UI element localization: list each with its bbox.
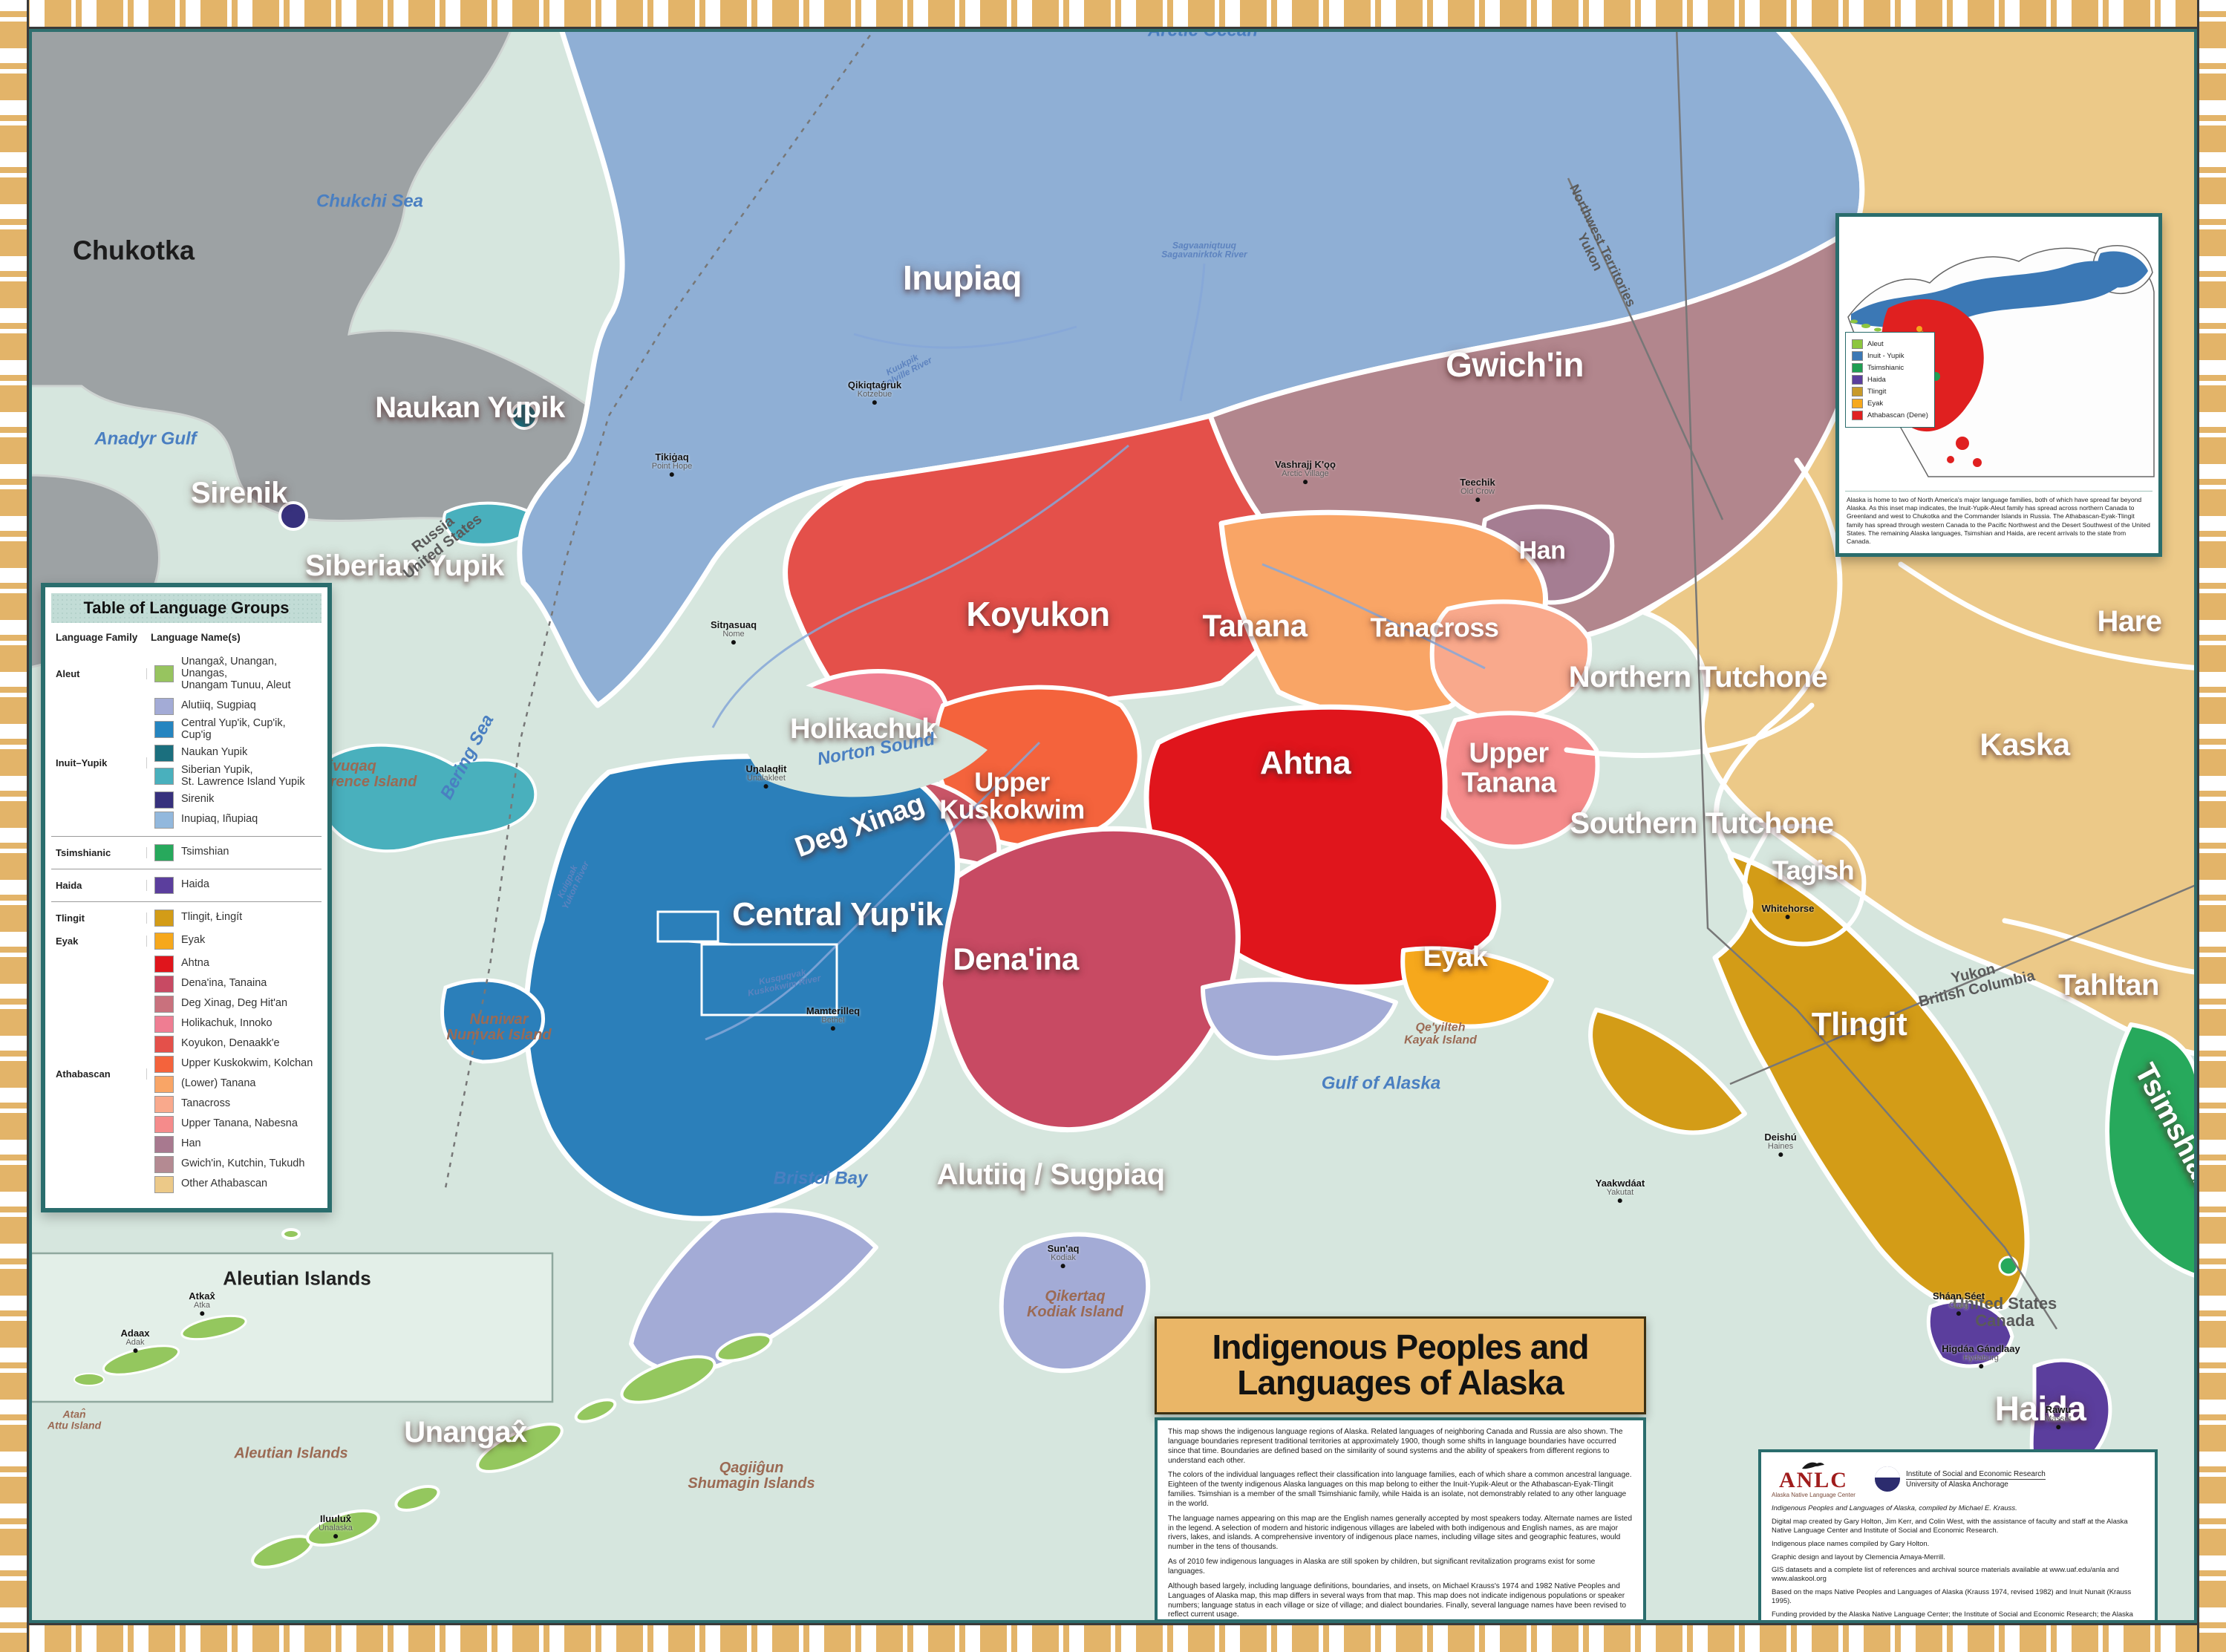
credits-line-2: Digital map created by Gary Holton, Jim … bbox=[1772, 1518, 2144, 1535]
legend-name: Upper Kuskokwim, Kolchan bbox=[181, 1058, 313, 1070]
legend-entries: Tlingit, Łingít bbox=[154, 907, 317, 930]
legend-entry-siberian-yupik-st-lawrence-island-yupik: Siberian Yupik, St. Lawrence Island Yupi… bbox=[154, 765, 317, 789]
inset-legend-row-aleut: Aleut bbox=[1852, 339, 1928, 349]
village-deish: DeishúHaines bbox=[1764, 1132, 1796, 1157]
village-indigenous-name: Mamterilleq bbox=[806, 1006, 860, 1016]
village-iluulux: Iluulux̂Unalaska bbox=[319, 1514, 353, 1538]
inset-legend-label: Athabascan (Dene) bbox=[1867, 411, 1928, 419]
poster-title-box: Indigenous Peoples and Languages of Alas… bbox=[1155, 1316, 1646, 1414]
legend-entry-unangax-unangan-unangas-unangam-tunuu-al: Unangax̂, Unangan, Unangas, Unangam Tunu… bbox=[154, 656, 317, 692]
legend-name: Koyukon, Denaakk'e bbox=[181, 1038, 280, 1050]
legend-name: Tanacross bbox=[181, 1098, 230, 1110]
legend-swatch bbox=[154, 1036, 174, 1053]
legend-swatch bbox=[154, 665, 174, 682]
legend-name: Other Athabascan bbox=[181, 1178, 267, 1190]
inset-eyak-dot bbox=[1916, 326, 1922, 332]
legend-entry-central-yup-ik-cup-ik-cup-ig: Central Yup'ik, Cup'ik, Cup'ig bbox=[154, 718, 317, 742]
legend-entry-sirenik: Sirenik bbox=[154, 791, 317, 809]
village-indigenous-name: Sun'aq bbox=[1048, 1244, 1080, 1254]
legend-entry-ahtna: Ahtna bbox=[154, 956, 317, 973]
legend-title: Table of Language Groups bbox=[51, 593, 322, 623]
legend-swatch bbox=[154, 698, 174, 715]
legend-entries: Haida bbox=[154, 874, 317, 897]
legend-entry-eyak: Eyak bbox=[154, 933, 317, 950]
legend-group-aleut: AleutUnangax̂, Unangan, Unangas, Unangam… bbox=[56, 653, 317, 695]
legend-body: AleutUnangax̂, Unangan, Unangas, Unangam… bbox=[45, 649, 327, 1201]
legend-entry-upper-tanana-nabesna: Upper Tanana, Nabesna bbox=[154, 1116, 317, 1133]
legend-name: Unangax̂, Unangan, Unangas, Unangam Tunu… bbox=[181, 656, 317, 692]
legend-family-tlingit: Tlingit bbox=[56, 912, 147, 924]
legend-swatch bbox=[154, 745, 174, 762]
village-indigenous-name: Yaakwdáat bbox=[1596, 1178, 1645, 1189]
legend-swatch bbox=[154, 1176, 174, 1193]
village-dot-icon bbox=[333, 1534, 338, 1538]
legend-swatch bbox=[154, 996, 174, 1013]
inset-legend-row-eyak: Eyak bbox=[1852, 399, 1928, 408]
legend-swatch bbox=[154, 812, 174, 829]
legend-name: Tsimshian bbox=[181, 846, 229, 858]
iser-line2: University of Alaska Anchorage bbox=[1906, 1480, 2008, 1489]
legend-section-0: AleutUnangax̂, Unangan, Unangas, Unangam… bbox=[51, 649, 322, 836]
village-indigenous-name: Whitehorse bbox=[1762, 904, 1815, 914]
village-indigenous-name: Atkax̂ bbox=[189, 1291, 215, 1302]
village-dot-icon bbox=[872, 400, 877, 405]
legend-entry-alutiiq-sugpiaq: Alutiiq, Sugpiaq bbox=[154, 698, 317, 715]
north-america-inset-box: AleutInuit - YupikTsimshianicHaidaTlingi… bbox=[1835, 213, 2162, 557]
description-paragraph-3: The language names appearing on this map… bbox=[1168, 1515, 1633, 1553]
village-indigenous-name: Teechik bbox=[1460, 477, 1495, 488]
frame-top bbox=[0, 0, 2226, 29]
village-teechik: TeechikOld Crow bbox=[1460, 477, 1495, 502]
village-dot-icon bbox=[2056, 1425, 2060, 1429]
village-indigenous-name: Sháan Séet bbox=[1933, 1291, 1985, 1302]
village-adaax: AdaaxAdak bbox=[120, 1328, 149, 1353]
legend-entry-dena-ina-tanaina: Dena'ina, Tanaina bbox=[154, 976, 317, 993]
legend-group-tlingit: TlingitTlingit, Łingít bbox=[56, 907, 317, 930]
legend-entry-upper-kuskokwim-kolchan: Upper Kuskokwim, Kolchan bbox=[154, 1056, 317, 1073]
legend-entry-gwich-in-kutchin-tukudh: Gwich'in, Kutchin, Tukudh bbox=[154, 1156, 317, 1173]
legend-swatch bbox=[154, 910, 174, 927]
inset-legend-swatch bbox=[1852, 375, 1863, 385]
village-english-name: Unalaska bbox=[319, 1524, 353, 1533]
inset-athabascan-sw3 bbox=[1947, 456, 1954, 463]
village-indigenous-name: Rawu bbox=[2045, 1405, 2071, 1415]
village-indigenous-name: Uŋalaqłit bbox=[746, 764, 787, 774]
legend-entry-inupiaq-i-upiaq: Inupiaq, Iñupiaq bbox=[154, 812, 317, 829]
legend-swatch bbox=[154, 768, 174, 785]
inset-athabascan-sw2 bbox=[1973, 458, 1982, 467]
inset-legend-row-tsimshianic: Tsimshianic bbox=[1852, 363, 1928, 373]
legend-swatch bbox=[154, 1076, 174, 1093]
village-rawu: RawuMasset bbox=[2045, 1405, 2071, 1429]
inset-legend-row-inuit-yupik: Inuit - Yupik bbox=[1852, 351, 1928, 361]
legend-name: Dena'ina, Tanaina bbox=[181, 978, 267, 990]
village-english-name: Bethel bbox=[806, 1016, 860, 1025]
legend-entry-tanacross: Tanacross bbox=[154, 1096, 317, 1113]
village-sh-an-s-et: Sháan SéetCraig bbox=[1933, 1291, 1985, 1316]
legend-entries: Tsimshian bbox=[154, 841, 317, 864]
village-english-name: Point Hope bbox=[652, 463, 692, 471]
village-english-name: Craig bbox=[1933, 1302, 1985, 1310]
credits-line-3: Indigenous place names compiled by Gary … bbox=[1772, 1540, 2144, 1549]
village-dot-icon bbox=[1956, 1311, 1961, 1316]
inset-legend-label: Haida bbox=[1867, 376, 1886, 384]
legend-entry-haida: Haida bbox=[154, 877, 317, 894]
village-dot-icon bbox=[1618, 1198, 1622, 1203]
village-dot-icon bbox=[133, 1348, 137, 1353]
description-paragraph-2: The colors of the individual languages r… bbox=[1168, 1471, 1633, 1509]
legend-name: (Lower) Tanana bbox=[181, 1078, 256, 1090]
inset-legend-swatch bbox=[1852, 399, 1863, 408]
legend-name: Sirenik bbox=[181, 794, 214, 806]
legend-name: Deg Xinag, Deg Hit'an bbox=[181, 998, 287, 1010]
village-higd-a-g-ndlaay: Higdáa GándlaayHydaburg bbox=[1942, 1344, 2020, 1368]
inset-legend-label: Eyak bbox=[1867, 399, 1883, 408]
iser-logo: Institute of Social and Economic Researc… bbox=[1875, 1466, 2046, 1492]
legend-name: Central Yup'ik, Cup'ik, Cup'ig bbox=[181, 718, 317, 742]
legend-entries: Eyak bbox=[154, 930, 317, 953]
village-english-name: Masset bbox=[2045, 1415, 2071, 1424]
village-dot-icon bbox=[200, 1311, 204, 1316]
inset-legend-label: Tlingit bbox=[1867, 388, 1886, 396]
village-dot-icon bbox=[670, 472, 674, 477]
village-english-name: Nome bbox=[711, 630, 757, 639]
legend-family-aleut: Aleut bbox=[56, 668, 147, 679]
legend-swatch bbox=[154, 721, 174, 738]
frame-bottom bbox=[0, 1623, 2226, 1652]
frame-right bbox=[2197, 0, 2226, 1652]
credits-line-6: Based on the maps Native Peoples and Lan… bbox=[1772, 1588, 2144, 1606]
village-english-name: Yakutat bbox=[1596, 1189, 1645, 1198]
village-dot-icon bbox=[1979, 1364, 1983, 1368]
village-english-name: Kodiak bbox=[1048, 1254, 1080, 1263]
inset-legend-swatch bbox=[1852, 411, 1863, 420]
village-dot-icon bbox=[731, 640, 736, 644]
inset-legend-row-tlingit: Tlingit bbox=[1852, 387, 1928, 396]
legend-name: Ahtna bbox=[181, 958, 209, 970]
village-indigenous-name: Vashrajj K'ǫǫ bbox=[1275, 460, 1336, 470]
inset-caption: Alaska is home to two of North America's… bbox=[1845, 491, 2152, 549]
village-english-name: Unalakleet bbox=[746, 774, 787, 783]
legend-name: Gwich'in, Kutchin, Tukudh bbox=[181, 1158, 304, 1170]
village-vashrajj-k: Vashrajj K'ǫǫArctic Village bbox=[1275, 460, 1336, 484]
legend-name: Eyak bbox=[181, 935, 205, 947]
village-english-name: Haines bbox=[1764, 1143, 1796, 1152]
legend-col-names: Language Name(s) bbox=[151, 632, 241, 643]
inset-legend-label: Inuit - Yupik bbox=[1867, 352, 1904, 360]
legend-family-tsimshianic: Tsimshianic bbox=[56, 847, 147, 858]
frame-left bbox=[0, 0, 29, 1652]
village-sun-aq: Sun'aqKodiak bbox=[1048, 1244, 1080, 1268]
poster-indigenous-languages-of-alaska: InupiaqGwich'inNaukan YupikSirenikSiberi… bbox=[0, 0, 2226, 1652]
village-dot-icon bbox=[764, 784, 768, 789]
legend-table-of-language-groups: Table of Language Groups Language Family… bbox=[41, 583, 332, 1212]
legend-swatch bbox=[154, 1136, 174, 1153]
village-sit-asuaq: SitŋasuaqNome bbox=[711, 620, 757, 644]
village-indigenous-name: Tikiġaq bbox=[652, 452, 692, 463]
legend-swatch bbox=[154, 1096, 174, 1113]
legend-family-athabascan: Athabascan bbox=[56, 1068, 147, 1080]
description-paragraph-1: This map shows the indigenous language r… bbox=[1168, 1428, 1633, 1466]
legend-group-athabascan: AthabascanAhtnaDena'ina, TanainaDeg Xina… bbox=[56, 953, 317, 1196]
description-paragraph-4: As of 2010 few indigenous languages in A… bbox=[1168, 1558, 1633, 1577]
credits-logos: ANLC Alaska Native Language Center Insti… bbox=[1772, 1460, 2144, 1498]
inset-athabascan-sw1 bbox=[1956, 437, 1969, 450]
inset-legend-label: Tsimshianic bbox=[1867, 364, 1904, 372]
anlc-logo: ANLC Alaska Native Language Center bbox=[1772, 1460, 1855, 1498]
legend-section-1: TsimshianicTsimshian bbox=[51, 836, 322, 869]
legend-swatch bbox=[154, 877, 174, 894]
legend-swatch bbox=[154, 1156, 174, 1173]
legend-entry-koyukon-denaakk-e: Koyukon, Denaakk'e bbox=[154, 1036, 317, 1053]
village-english-name: Arctic Village bbox=[1275, 470, 1336, 479]
village-mamterilleq: MamterilleqBethel bbox=[806, 1006, 860, 1031]
legend-name: Inupiaq, Iñupiaq bbox=[181, 814, 258, 826]
village-indigenous-name: Sitŋasuaq bbox=[711, 620, 757, 630]
village-yaakwd-at: YaakwdáatYakutat bbox=[1596, 1178, 1645, 1203]
legend-section-3: TlingitTlingit, ŁingítEyakEyakAthabascan… bbox=[51, 901, 322, 1201]
inset-legend-row-haida: Haida bbox=[1852, 375, 1928, 385]
village-english-name: Atka bbox=[189, 1302, 215, 1310]
legend-swatch bbox=[154, 791, 174, 809]
legend-swatch bbox=[154, 933, 174, 950]
legend-swatch bbox=[154, 1056, 174, 1073]
legend-name: Upper Tanana, Nabesna bbox=[181, 1118, 298, 1130]
village-dot-icon bbox=[1303, 480, 1308, 484]
village-dot-icon bbox=[1475, 497, 1480, 502]
legend-swatch bbox=[154, 976, 174, 993]
credits-lines: Indigenous Peoples and Languages of Alas… bbox=[1772, 1504, 2144, 1637]
legend-group-inuit-yupik: Inuit–YupikAlutiiq, SugpiaqCentral Yup'i… bbox=[56, 695, 317, 832]
anlc-wordmark: ANLC bbox=[1779, 1470, 1848, 1490]
legend-swatch bbox=[154, 844, 174, 861]
legend-name: Tlingit, Łingít bbox=[181, 912, 242, 924]
north-america-inset-map: AleutInuit - YupikTsimshianicHaidaTlingi… bbox=[1839, 221, 2158, 488]
legend-group-haida: HaidaHaida bbox=[56, 874, 317, 897]
village-english-name: Kotzebue bbox=[848, 391, 901, 399]
village-english-name: Hydaburg bbox=[1942, 1354, 2020, 1363]
village-dot-icon bbox=[1061, 1264, 1065, 1268]
credits-line-1: Indigenous Peoples and Languages of Alas… bbox=[1772, 1504, 2144, 1513]
village-atkax: Atkax̂Atka bbox=[189, 1291, 215, 1316]
legend-entry-other-athabascan: Other Athabascan bbox=[154, 1176, 317, 1193]
legend-section-2: HaidaHaida bbox=[51, 869, 322, 901]
legend-group-eyak: EyakEyak bbox=[56, 930, 317, 953]
credits-line-4: Graphic design and layout by Clemencia A… bbox=[1772, 1553, 2144, 1562]
legend-entry-naukan-yupik: Naukan Yupik bbox=[154, 745, 317, 762]
village-english-name: Adak bbox=[120, 1339, 149, 1348]
legend-entries: AhtnaDena'ina, TanainaDeg Xinag, Deg Hit… bbox=[154, 953, 317, 1196]
iser-globe-icon bbox=[1875, 1466, 1900, 1492]
legend-family-inuit-yupik: Inuit–Yupik bbox=[56, 757, 147, 768]
anlc-caption: Alaska Native Language Center bbox=[1772, 1492, 1855, 1498]
legend-name: Siberian Yupik, St. Lawrence Island Yupi… bbox=[181, 765, 305, 789]
village-indigenous-name: Deishú bbox=[1764, 1132, 1796, 1143]
village-qikiqta-ruk: QikiqtaġrukKotzebue bbox=[848, 380, 901, 405]
village-dot-icon bbox=[1778, 1152, 1783, 1157]
legend-swatch bbox=[154, 1016, 174, 1033]
legend-entries: Unangax̂, Unangan, Unangas, Unangam Tunu… bbox=[154, 653, 317, 695]
legend-entry-tlingit-ing-t: Tlingit, Łingít bbox=[154, 910, 317, 927]
legend-group-tsimshianic: TsimshianicTsimshian bbox=[56, 841, 317, 864]
village-dot-icon bbox=[1786, 915, 1790, 919]
legend-col-family: Language Family bbox=[56, 632, 151, 643]
village-dot-icon bbox=[831, 1026, 835, 1031]
village-u-alaq-it: UŋalaqłitUnalakleet bbox=[746, 764, 787, 789]
village-indigenous-name: Qikiqtaġruk bbox=[848, 380, 901, 391]
poster-title: Indigenous Peoples and Languages of Alas… bbox=[1212, 1330, 1588, 1401]
village-indigenous-name: Iluulux̂ bbox=[319, 1514, 353, 1524]
credits-line-5: GIS datasets and a complete list of refe… bbox=[1772, 1566, 2144, 1584]
legend-name: Haida bbox=[181, 879, 209, 891]
legend-name: Holikachuk, Innoko bbox=[181, 1018, 272, 1030]
legend-entries: Alutiiq, SugpiaqCentral Yup'ik, Cup'ik, … bbox=[154, 695, 317, 832]
inset-legend-swatch bbox=[1852, 363, 1863, 373]
inset-legend-label: Aleut bbox=[1867, 340, 1884, 348]
legend-name: Han bbox=[181, 1138, 201, 1150]
legend-swatch bbox=[154, 956, 174, 973]
description-paragraph-5: Although based largely, including langua… bbox=[1168, 1582, 1633, 1620]
inset-legend-swatch bbox=[1852, 339, 1863, 349]
legend-name: Alutiiq, Sugpiaq bbox=[181, 700, 256, 712]
inset-legend-swatch bbox=[1852, 351, 1863, 361]
village-indigenous-name: Adaax bbox=[120, 1328, 149, 1339]
description-box: This map shows the indigenous language r… bbox=[1155, 1417, 1646, 1622]
inset-legend-row-athabascan-dene: Athabascan (Dene) bbox=[1852, 411, 1928, 420]
inset-legend-swatch bbox=[1852, 387, 1863, 396]
village-indigenous-name: Higdáa Gándlaay bbox=[1942, 1344, 2020, 1354]
legend-family-haida: Haida bbox=[56, 880, 147, 891]
legend-entry-holikachuk-innoko: Holikachuk, Innoko bbox=[154, 1016, 317, 1033]
village-whitehorse: Whitehorse bbox=[1762, 904, 1815, 919]
legend-column-headers: Language Family Language Name(s) bbox=[45, 629, 327, 649]
legend-name: Naukan Yupik bbox=[181, 747, 247, 759]
inset-legend: AleutInuit - YupikTsimshianicHaidaTlingi… bbox=[1845, 332, 1935, 428]
legend-entry-han: Han bbox=[154, 1136, 317, 1153]
legend-family-eyak: Eyak bbox=[56, 936, 147, 947]
legend-swatch bbox=[154, 1116, 174, 1133]
village-tiki-aq: TikiġaqPoint Hope bbox=[652, 452, 692, 477]
iser-line1: Institute of Social and Economic Researc… bbox=[1906, 1469, 2046, 1480]
legend-entry-tsimshian: Tsimshian bbox=[154, 844, 317, 861]
credits-box: ANLC Alaska Native Language Center Insti… bbox=[1758, 1449, 2158, 1652]
legend-entry-deg-xinag-deg-hit-an: Deg Xinag, Deg Hit'an bbox=[154, 996, 317, 1013]
village-english-name: Old Crow bbox=[1460, 488, 1495, 497]
legend-entry-lower-tanana: (Lower) Tanana bbox=[154, 1076, 317, 1093]
